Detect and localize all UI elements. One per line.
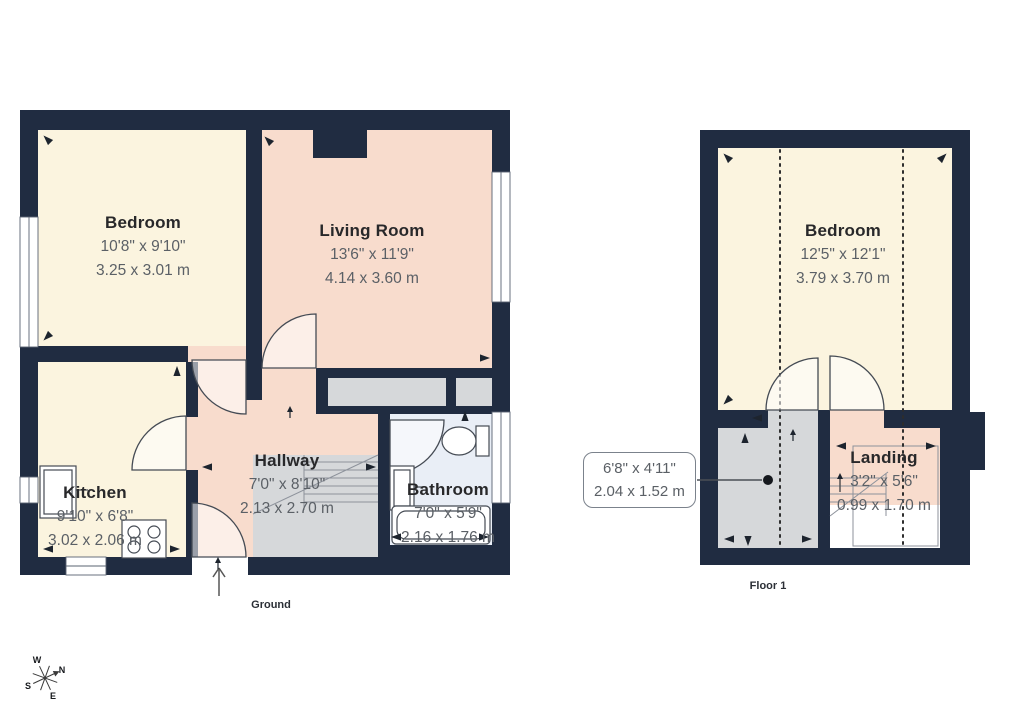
compass-south-label: S [25, 681, 31, 691]
chimney-breast [313, 130, 367, 158]
front-door-opening [192, 557, 248, 575]
floor1-caption: Floor 1 [750, 580, 787, 592]
kitchen-door-gap [186, 417, 198, 470]
floor1-wall-stepout [970, 412, 985, 470]
floor1-wall-c [884, 410, 970, 428]
wall-hall-bathroom [378, 474, 390, 545]
stairwell-void [830, 505, 940, 548]
wall-hall-bathroom-top [378, 414, 390, 420]
storage-door-gap [768, 410, 818, 428]
callout-dims-imperial: 6'8" x 4'11" [594, 457, 685, 480]
compass-east-label: E [50, 691, 56, 701]
compass-north-label: N [59, 665, 66, 675]
storage-area-right [456, 378, 492, 406]
wall-storage-landing [818, 428, 830, 548]
bathtub-icon [392, 506, 490, 544]
wall-bedroom-living [246, 130, 262, 400]
stove-icon [122, 520, 166, 558]
staircase-ground [253, 455, 378, 557]
floorplan-page: Bedroom 10'8" x 9'10" 3.25 x 3.01 m Livi… [0, 0, 1024, 724]
callout-dims-metric: 2.04 x 1.52 m [594, 480, 685, 503]
wall-bedroom-kitchen [20, 346, 188, 362]
dimension-callout: 6'8" x 4'11" 2.04 x 1.52 m [583, 452, 696, 508]
ground-caption: Ground [251, 599, 291, 611]
ground-bedroom-floor [38, 130, 246, 346]
eaves-storage-floor [718, 428, 818, 548]
floor1-wall-b [818, 410, 830, 428]
callout-anchor-dot [763, 475, 773, 485]
first-floor-plan [697, 130, 985, 565]
wall-bathroom-bottom [378, 545, 492, 557]
compass-west-label: W [33, 655, 42, 665]
toilet-icon [442, 426, 489, 456]
floorplan-graphic [0, 0, 1024, 724]
landing-floor [830, 428, 940, 505]
storage-area-left [328, 378, 446, 406]
ground-floor-plan [20, 110, 510, 596]
landing-door-gap [830, 410, 884, 428]
